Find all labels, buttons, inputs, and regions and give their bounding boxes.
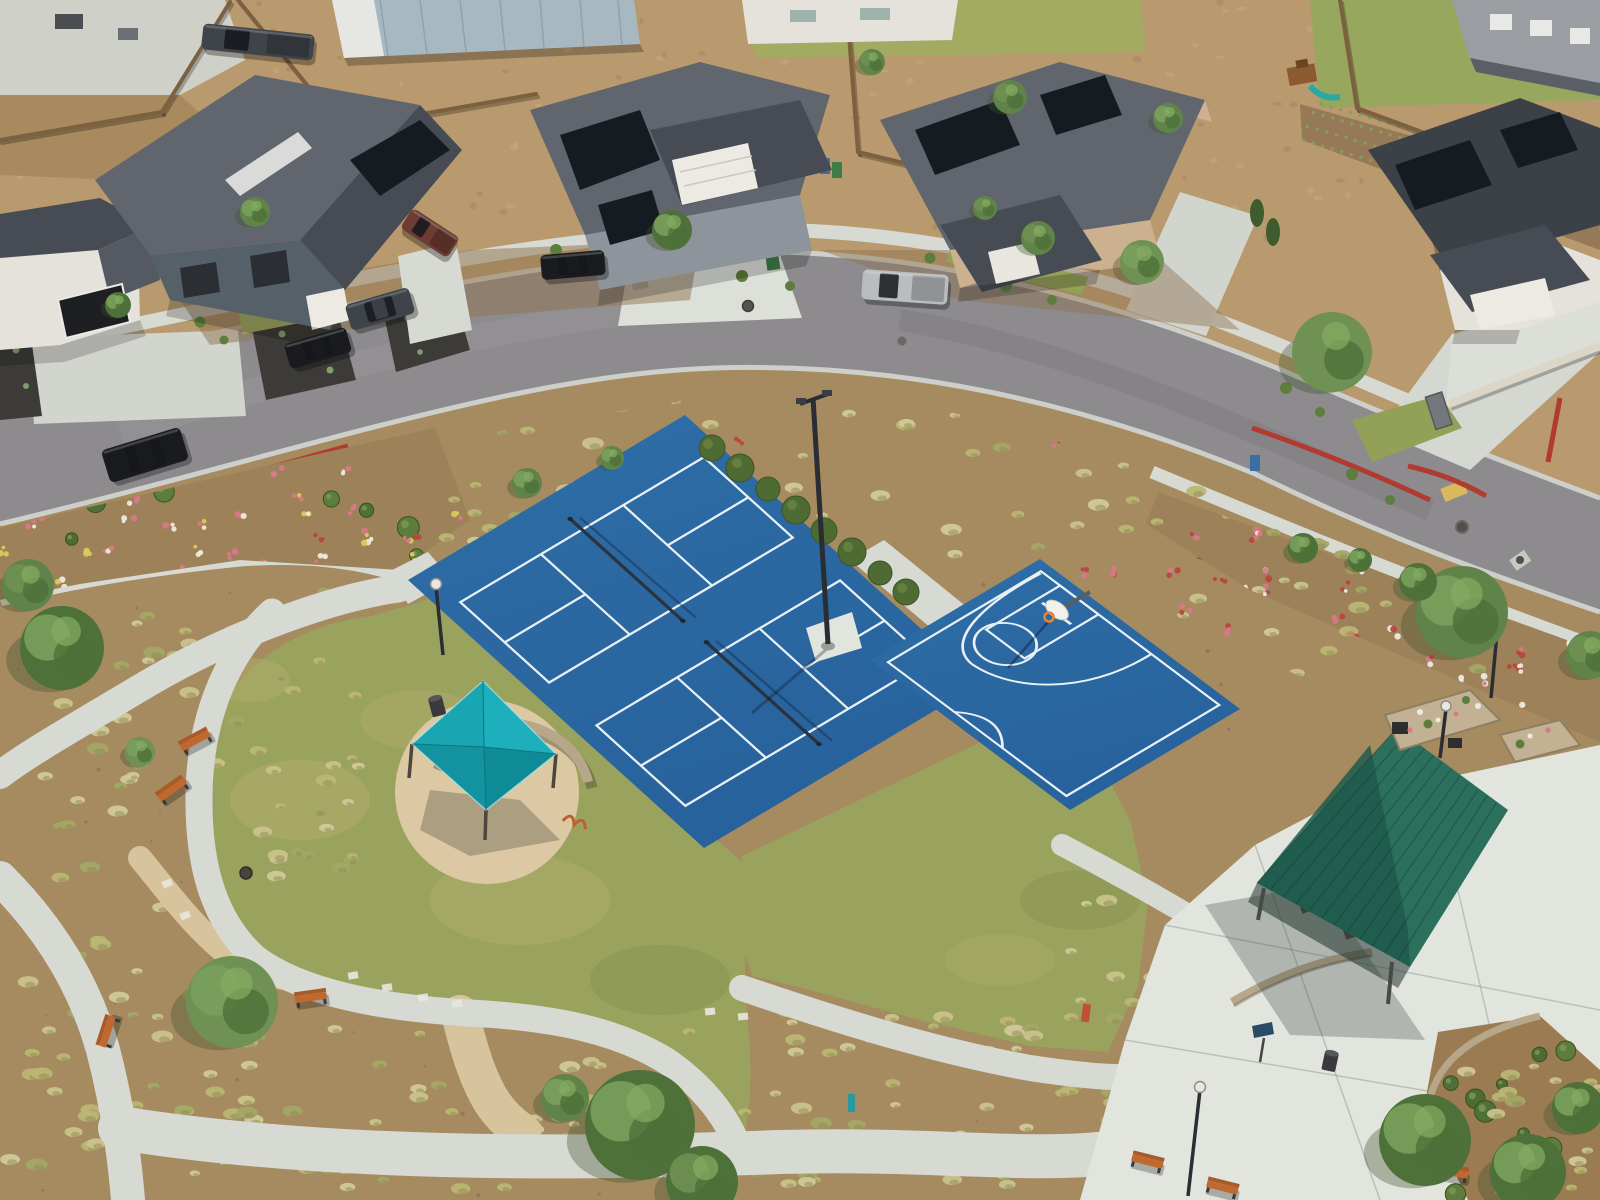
bbq-grill-2 [1448, 738, 1462, 748]
vehicle-black-sedan-2 [540, 249, 609, 285]
window [180, 262, 220, 298]
manhole [743, 301, 754, 312]
aerial-photo-stage [0, 0, 1600, 1200]
vehicle-silver-pickup [861, 269, 952, 310]
blue-bin-2 [1250, 455, 1260, 471]
drinking-fountain-teal [848, 1094, 855, 1112]
house-top-center [742, 0, 958, 44]
pad-equipment-2 [118, 28, 138, 40]
bbq-grill [1392, 722, 1408, 734]
manhole-4 [898, 337, 907, 346]
pad-equipment [55, 14, 83, 29]
park-manhole [240, 867, 252, 879]
aerial-photo [0, 0, 1600, 1200]
green-bin [832, 162, 842, 178]
window [250, 250, 290, 288]
manhole-3 [1516, 556, 1524, 564]
manhole-2 [1456, 521, 1468, 533]
